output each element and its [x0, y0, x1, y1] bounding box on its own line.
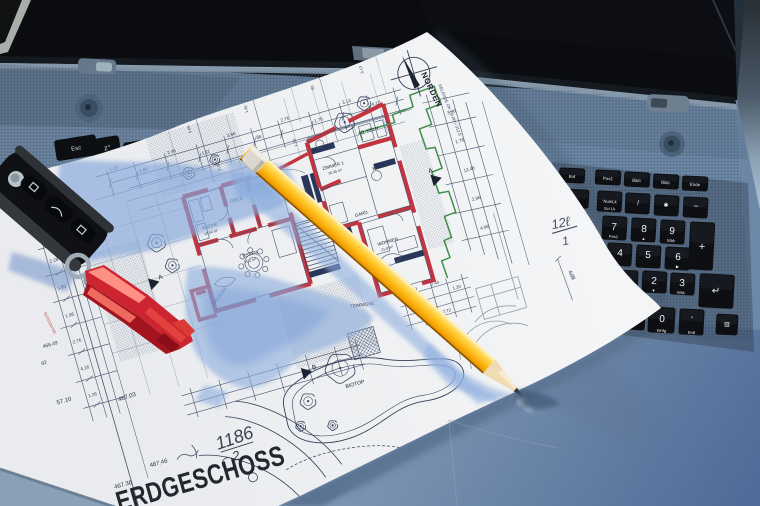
svg-text:Pos1: Pos1 [609, 234, 619, 240]
svg-text:Bild↑: Bild↑ [632, 178, 642, 183]
svg-text:NumLk: NumLk [603, 199, 617, 205]
svg-text:✱: ✱ [663, 202, 668, 209]
svg-text:+: + [698, 241, 705, 253]
svg-text:8: 8 [641, 224, 648, 235]
svg-text:−: − [693, 201, 699, 211]
svg-text:Bild↓: Bild↓ [677, 290, 686, 295]
svg-text:Ende: Ende [690, 182, 701, 188]
svg-text:▥: ▥ [724, 322, 730, 328]
svg-text:3: 3 [679, 278, 686, 289]
svg-text:Pos1: Pos1 [603, 176, 614, 182]
svg-text:↵: ↵ [711, 286, 720, 297]
svg-text:0: 0 [659, 314, 666, 325]
svg-text:5: 5 [645, 250, 652, 261]
svg-text:4: 4 [617, 248, 624, 259]
svg-text:´: ´ [690, 315, 694, 327]
svg-text:▼: ▼ [651, 288, 655, 293]
svg-text:Einfg: Einfg [657, 328, 666, 333]
svg-text:2: 2 [651, 276, 658, 287]
svg-text:/: / [637, 200, 639, 207]
svg-text:6: 6 [675, 252, 682, 263]
svg-text:9: 9 [669, 226, 676, 237]
svg-text:Entf: Entf [688, 330, 696, 335]
svg-text:Enf: Enf [569, 174, 577, 179]
svg-text:7: 7 [611, 222, 618, 233]
svg-text:Bild↓: Bild↓ [661, 180, 671, 185]
svg-text:Scr Lk: Scr Lk [604, 206, 616, 212]
svg-text:Bild↑: Bild↑ [667, 238, 676, 243]
svg-text:▲: ▲ [641, 236, 645, 241]
